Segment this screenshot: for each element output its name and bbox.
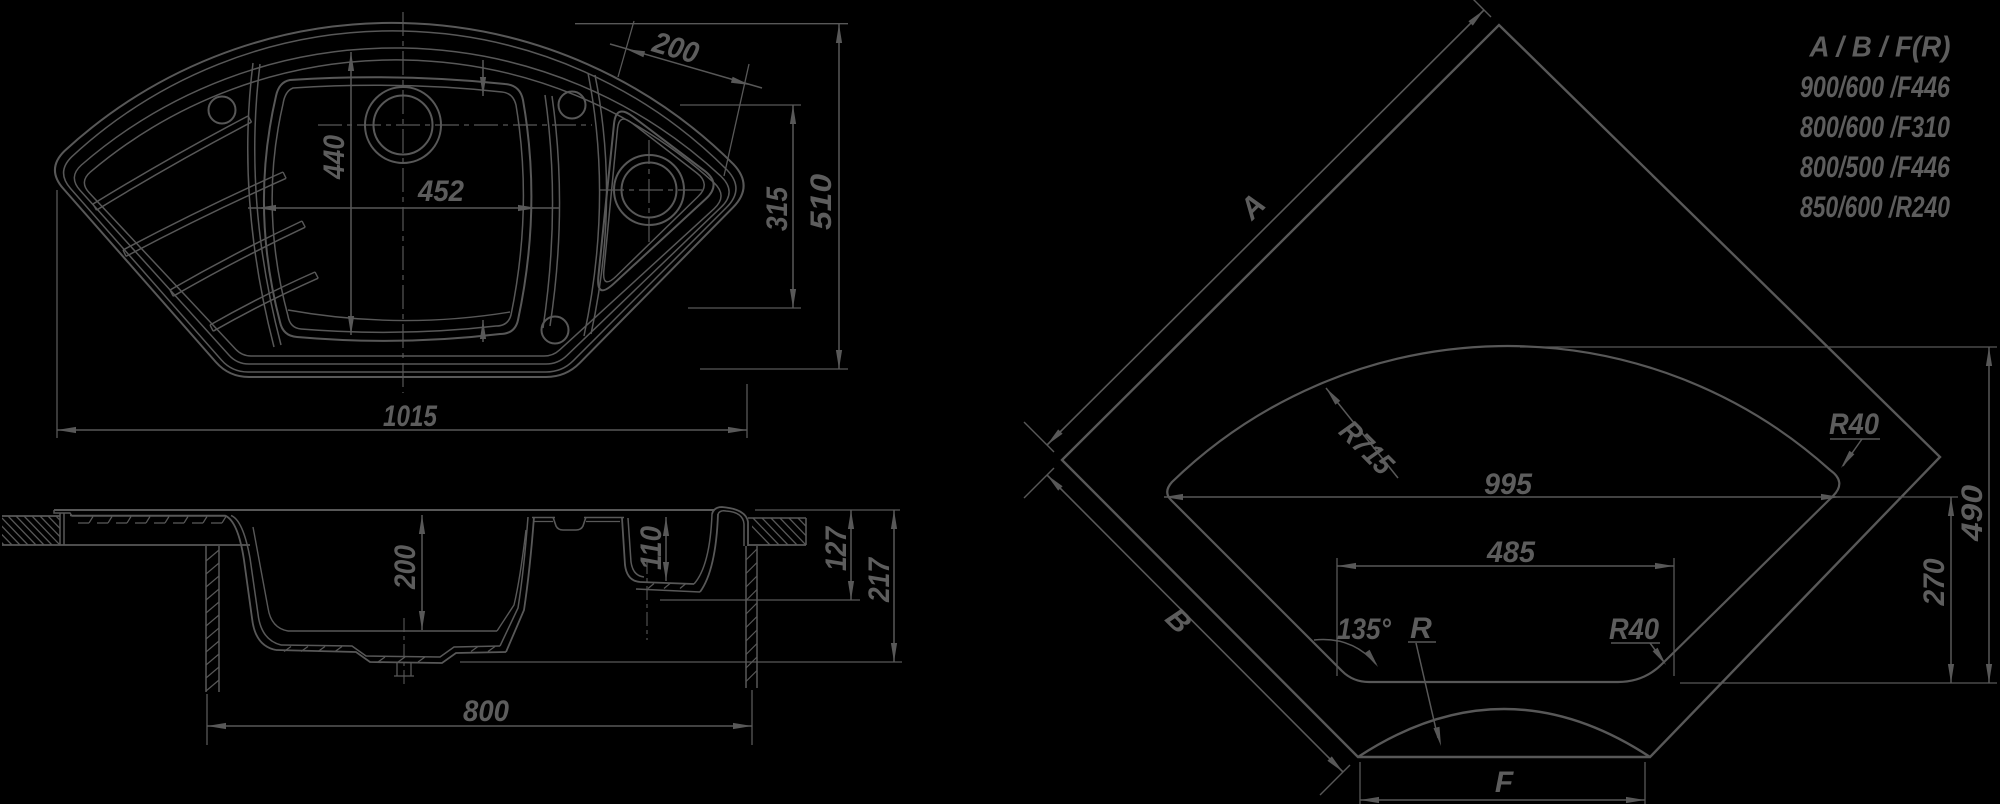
- svg-text:F: F: [1495, 766, 1514, 799]
- svg-text:510: 510: [805, 174, 838, 230]
- svg-text:485: 485: [1486, 536, 1536, 569]
- svg-text:270: 270: [1918, 558, 1951, 606]
- svg-text:440: 440: [318, 135, 351, 180]
- svg-text:800: 800: [463, 695, 509, 728]
- svg-text:490: 490: [1956, 485, 1989, 542]
- svg-text:452: 452: [417, 175, 464, 208]
- svg-text:1015: 1015: [383, 400, 438, 433]
- svg-text:R40: R40: [1609, 613, 1659, 646]
- svg-text:850/600 /R240: 850/600 /R240: [1800, 191, 1950, 224]
- svg-text:217: 217: [863, 557, 896, 603]
- svg-text:800/500 /F446: 800/500 /F446: [1800, 151, 1950, 184]
- svg-text:315: 315: [761, 186, 794, 231]
- svg-text:R40: R40: [1829, 408, 1879, 441]
- svg-text:A / B / F(R): A / B / F(R): [1809, 31, 1951, 63]
- svg-text:800/600 /F310: 800/600 /F310: [1800, 111, 1950, 144]
- svg-text:200: 200: [389, 545, 422, 590]
- svg-text:135°: 135°: [1337, 613, 1392, 646]
- svg-text:R: R: [1410, 612, 1432, 645]
- svg-text:127: 127: [820, 526, 853, 571]
- svg-text:995: 995: [1484, 468, 1533, 501]
- svg-text:900/600 /F446: 900/600 /F446: [1800, 71, 1950, 104]
- svg-text:110: 110: [635, 526, 668, 570]
